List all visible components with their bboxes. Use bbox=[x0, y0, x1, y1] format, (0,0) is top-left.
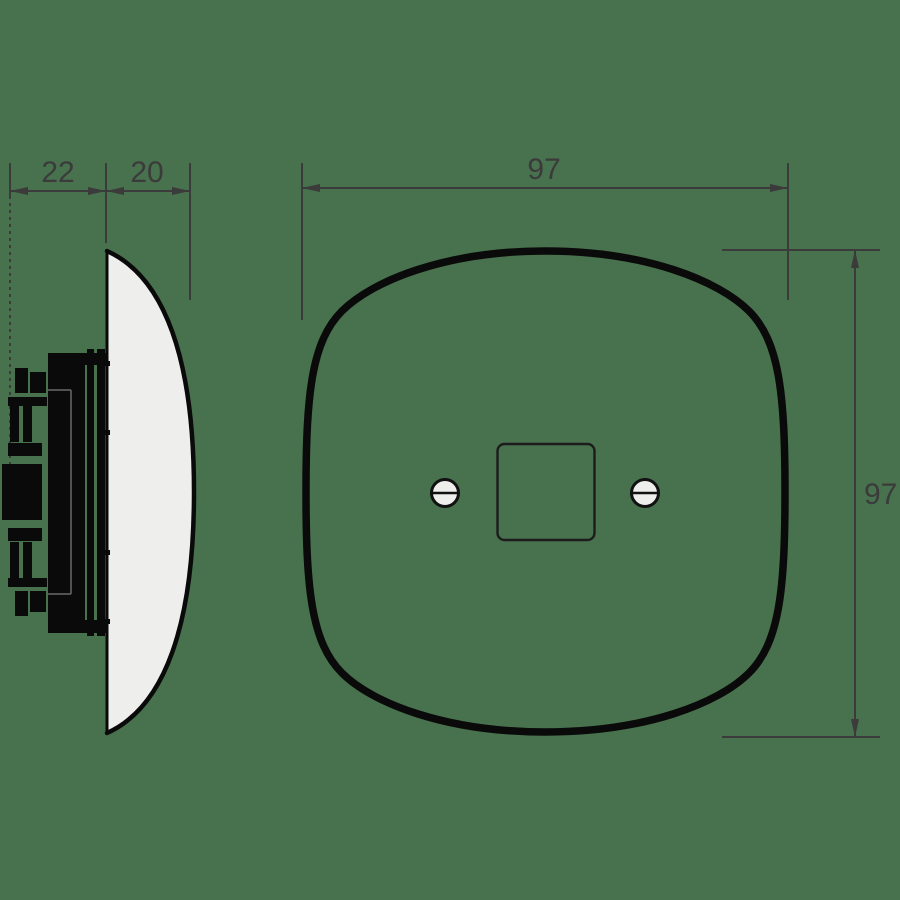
mechanism-part bbox=[8, 443, 42, 456]
mechanism-part bbox=[30, 591, 46, 612]
mechanism-part bbox=[87, 349, 94, 636]
dimension-label: 20 bbox=[130, 156, 163, 189]
mechanism-part bbox=[23, 406, 32, 442]
mechanism-part bbox=[10, 406, 19, 442]
screw-left bbox=[432, 480, 459, 507]
dimension-label: 97 bbox=[527, 153, 560, 186]
mechanism-part bbox=[23, 542, 32, 578]
mechanism-part bbox=[30, 372, 46, 393]
technical-drawing: 22 20 bbox=[0, 0, 900, 900]
mechanism-part bbox=[48, 353, 85, 633]
mechanism-part bbox=[15, 591, 28, 616]
mechanism-claw bbox=[103, 361, 110, 366]
mechanism-part bbox=[8, 397, 47, 406]
mechanism-part bbox=[15, 368, 28, 393]
mechanism-part bbox=[97, 349, 105, 636]
dimension-label: 22 bbox=[41, 156, 74, 189]
dimension-label: 97 bbox=[864, 478, 897, 511]
mechanism-part bbox=[8, 528, 42, 541]
mechanism-part bbox=[10, 542, 19, 578]
screw-right bbox=[632, 480, 659, 507]
mechanism-claw bbox=[103, 619, 110, 624]
mechanism-part bbox=[8, 578, 47, 587]
mechanism-claw bbox=[103, 550, 110, 555]
mechanism-claw bbox=[103, 430, 110, 435]
mechanism bbox=[2, 349, 110, 636]
mechanism-part bbox=[2, 464, 42, 520]
